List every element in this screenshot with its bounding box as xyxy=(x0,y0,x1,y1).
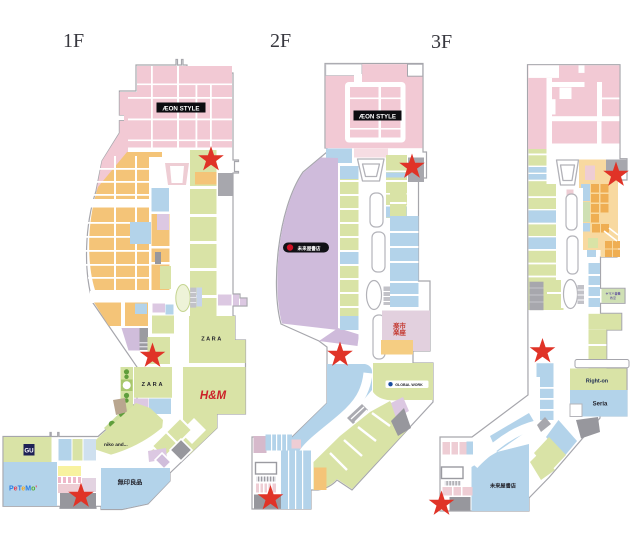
svg-text:ZARA: ZARA xyxy=(142,382,165,388)
svg-text:GLOBAL WORK: GLOBAL WORK xyxy=(395,383,423,387)
svg-text:H&M: H&M xyxy=(200,390,227,402)
svg-text:ÆON STYLE: ÆON STYLE xyxy=(162,105,199,112)
svg-text:未来屋書店: 未来屋書店 xyxy=(297,245,321,252)
svg-text:未来屋書店: 未来屋書店 xyxy=(490,482,516,490)
svg-text:教室: 教室 xyxy=(610,295,616,300)
svg-text:Right-on: Right-on xyxy=(586,379,608,385)
svg-text:ZARA: ZARA xyxy=(201,337,223,343)
svg-text:ヤマハ音楽: ヤマハ音楽 xyxy=(605,291,620,296)
svg-text:1F: 1F xyxy=(63,30,84,52)
svg-text:GU: GU xyxy=(24,448,34,455)
svg-text:niko and...: niko and... xyxy=(104,442,128,448)
svg-text:2F: 2F xyxy=(270,30,291,52)
svg-text:Seria: Seria xyxy=(593,402,608,408)
svg-text:無印良品: 無印良品 xyxy=(118,479,143,487)
svg-text:ÆON STYLE: ÆON STYLE xyxy=(359,113,396,120)
svg-text:3F: 3F xyxy=(431,31,452,53)
svg-text:楽座: 楽座 xyxy=(393,328,406,337)
svg-text:PeTeMo': PeTeMo' xyxy=(9,486,37,493)
